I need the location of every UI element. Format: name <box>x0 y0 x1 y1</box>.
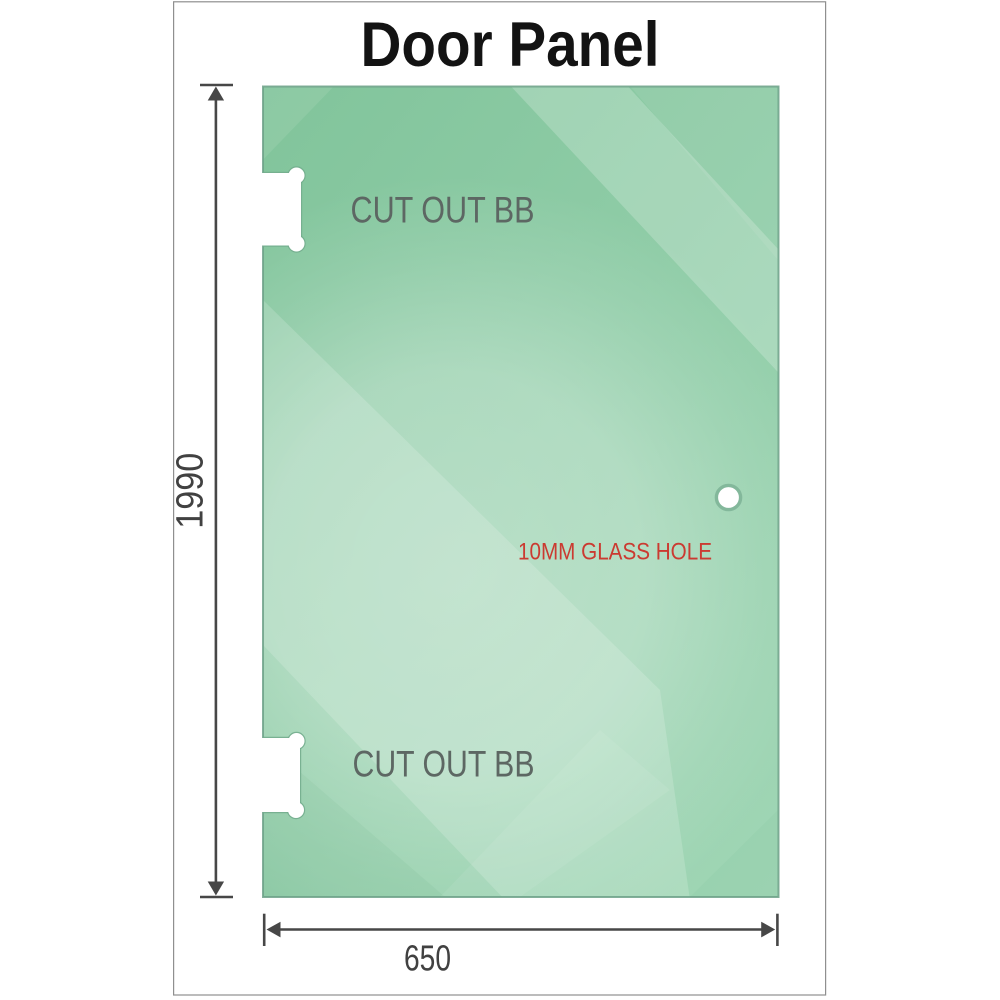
svg-text:10MM GLASS HOLE: 10MM GLASS HOLE <box>518 538 712 565</box>
svg-text:CUT OUT BB: CUT OUT BB <box>353 743 535 784</box>
svg-text:CUT OUT BB: CUT OUT BB <box>351 190 535 231</box>
svg-text:Door Panel: Door Panel <box>361 10 660 80</box>
svg-text:650: 650 <box>404 937 451 978</box>
svg-text:1990: 1990 <box>169 453 211 529</box>
